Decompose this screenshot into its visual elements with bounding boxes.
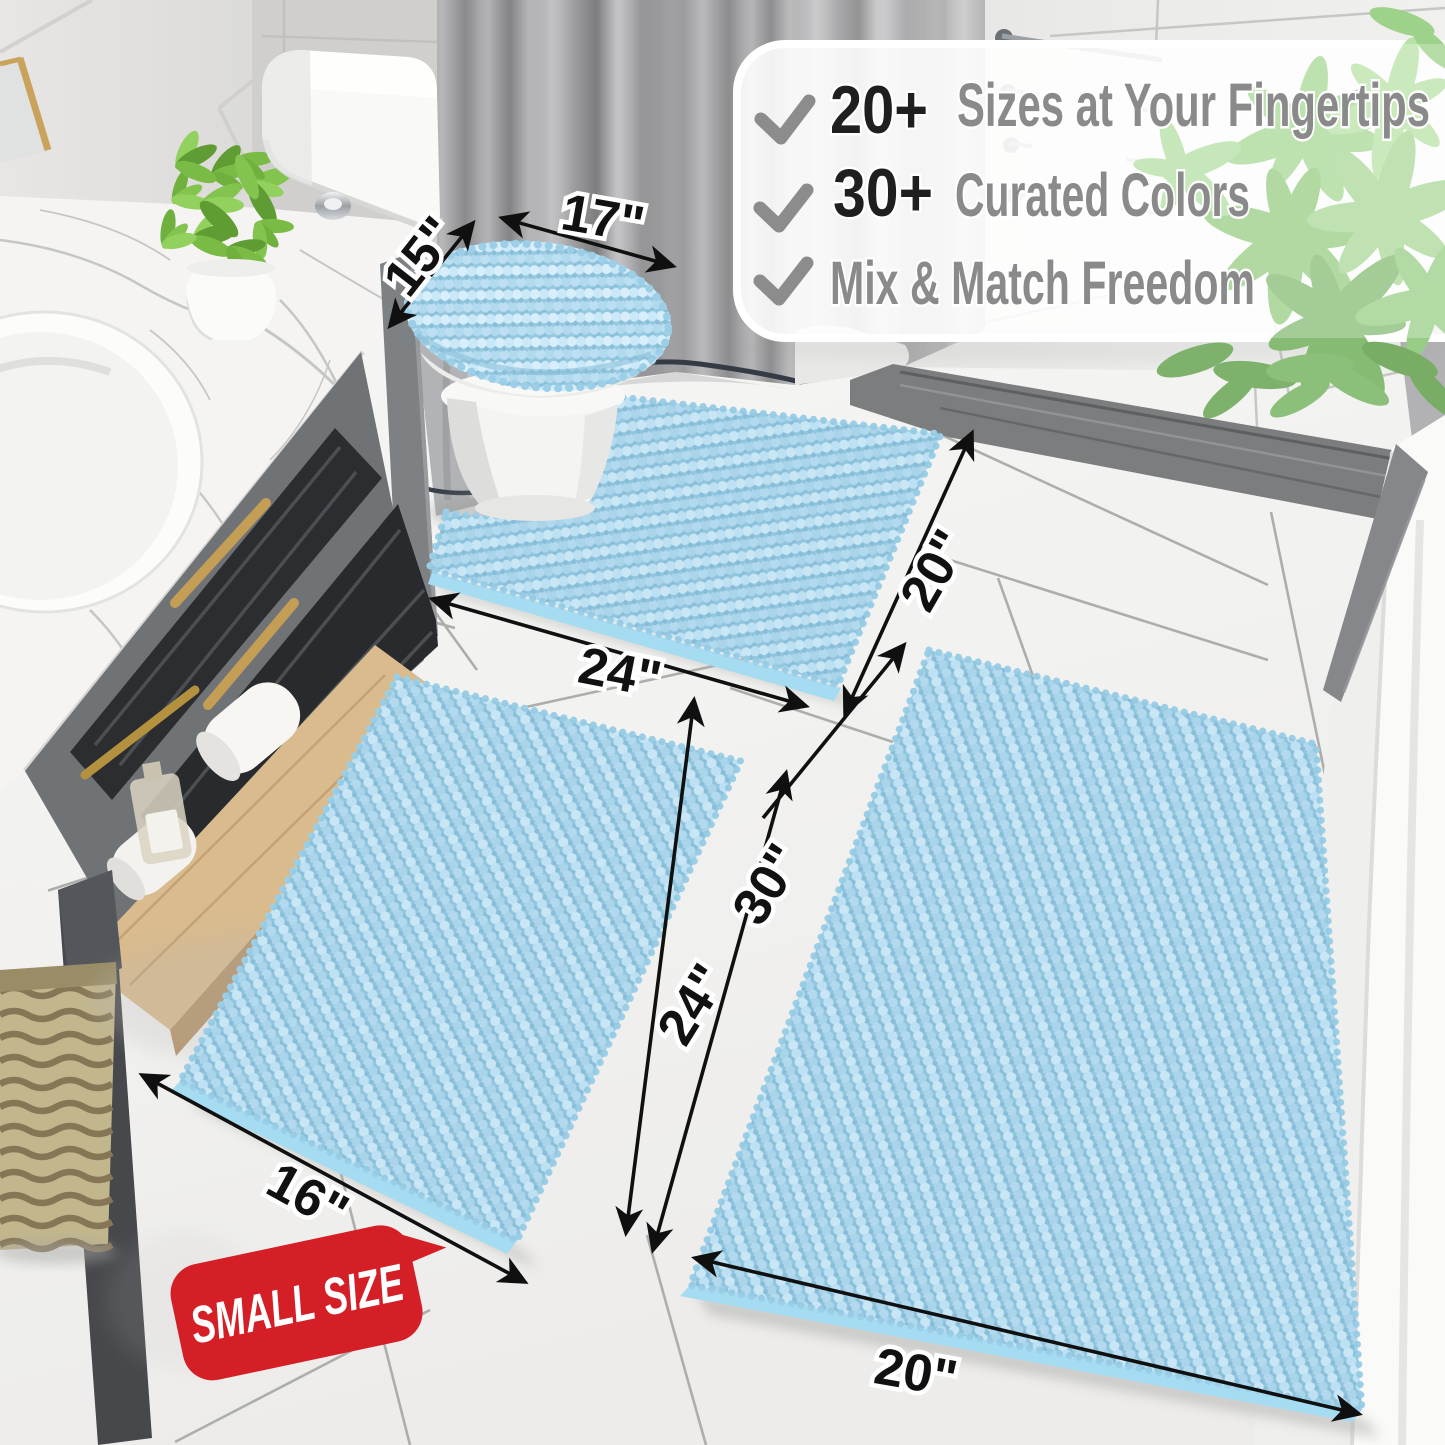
- svg-text:20+: 20+: [830, 72, 928, 148]
- svg-text:Curated Colors: Curated Colors: [955, 161, 1250, 229]
- svg-text:30+: 30+: [833, 155, 933, 231]
- svg-text:Mix & Match Freedom: Mix & Match Freedom: [830, 249, 1255, 317]
- svg-text:Sizes at Your Fingertips: Sizes at Your Fingertips: [957, 71, 1430, 139]
